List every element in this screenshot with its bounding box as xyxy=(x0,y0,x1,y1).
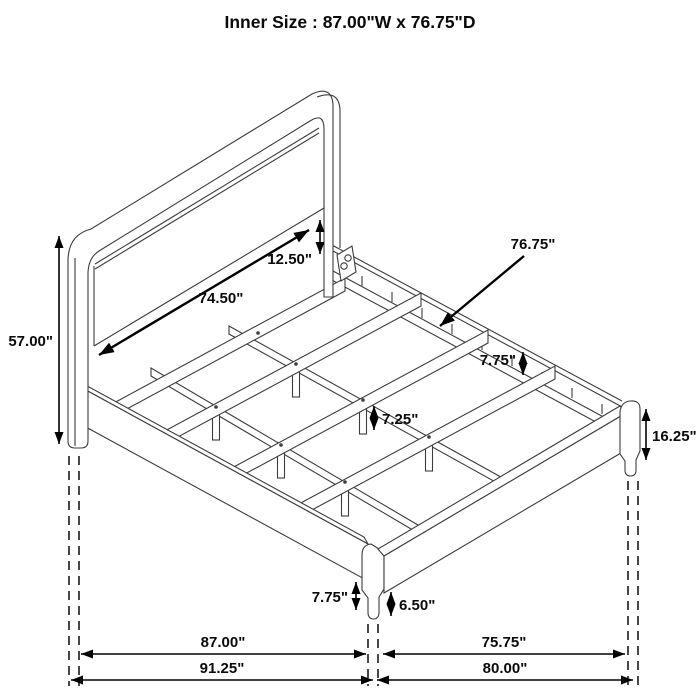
dim-overall-depth: 80.00" xyxy=(483,660,528,677)
dim-center-leg-height: 7.25" xyxy=(382,411,418,428)
dim-footboard-height: 16.25" xyxy=(652,428,697,445)
dim-inner-width: 87.00" xyxy=(201,634,246,651)
dim-overall-width: 91.25" xyxy=(200,660,245,677)
bed-dimension-diagram-page: 57.00" 74.50" 12.50" 76.75" 7.75" 7.25" … xyxy=(0,0,700,700)
diagram-title: Inner Size : 87.00"W x 76.75"D xyxy=(224,12,475,32)
dim-foot-inner-span: 75.75" xyxy=(482,634,527,651)
rail-bracket xyxy=(337,246,356,281)
dim-foot-leg-height: 6.50" xyxy=(399,597,435,614)
headboard xyxy=(68,91,356,448)
dim-inner-depth: 76.75" xyxy=(511,236,556,253)
front-left-leg xyxy=(362,544,384,619)
dim-headboard-height: 57.00" xyxy=(8,333,53,350)
dim-front-leg-height: 7.75" xyxy=(312,589,348,606)
bed-dimension-diagram: 57.00" 74.50" 12.50" 76.75" 7.75" 7.25" … xyxy=(0,0,700,700)
foot-right-leg xyxy=(620,401,640,476)
dim-panel-gap: 12.50" xyxy=(267,251,312,268)
dim-headboard-panel-width: 74.50" xyxy=(199,290,244,307)
dim-side-rail-height: 7.75" xyxy=(480,352,516,369)
